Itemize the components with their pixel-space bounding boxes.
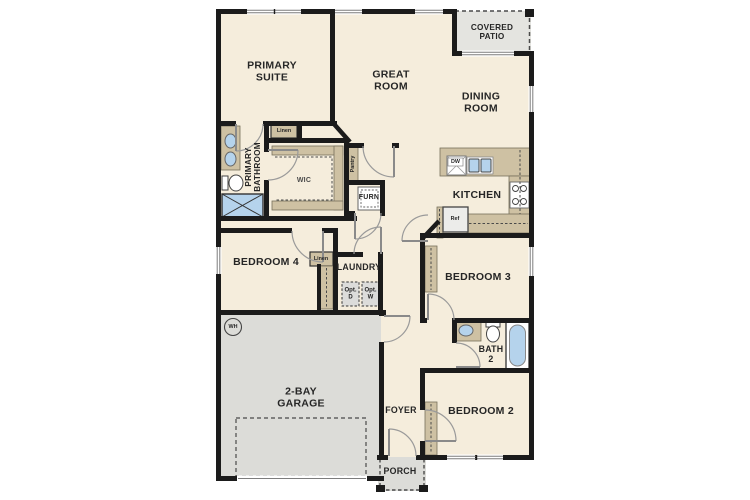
optional-dryer-box — [342, 282, 359, 306]
pantry-shelf — [348, 147, 358, 181]
furnace-fixture — [358, 187, 381, 210]
primary-bath-toilet-tank — [222, 176, 228, 190]
linen-closet-hall — [310, 252, 333, 266]
primary-bath-toilet — [229, 175, 243, 191]
garage-floor — [220, 313, 381, 478]
covered-patio-floor — [453, 11, 531, 53]
primary-bath-shower — [222, 194, 263, 217]
wic-shelf-bottom — [272, 201, 343, 210]
bath2-tub — [506, 321, 529, 369]
bath2-toilet — [487, 326, 500, 342]
dishwasher-fixture — [447, 156, 466, 175]
floor-plan: PRIMARY SUITE GREAT ROOM COVERED PATIO D… — [0, 0, 750, 500]
wic-shelf-right — [334, 146, 343, 210]
primary-bath-sink-1 — [225, 134, 236, 148]
floor-fills — [219, 11, 531, 491]
optional-washer-box — [362, 282, 379, 306]
refrigerator-fixture — [443, 207, 468, 232]
linen-closet-bath — [271, 124, 297, 138]
kitchen-sink — [467, 157, 493, 174]
primary-bath-sink-2 — [225, 152, 236, 166]
floor-plan-drawing — [0, 0, 750, 500]
porch-floor — [378, 457, 426, 491]
water-heater-fixture — [225, 319, 242, 336]
bath2-sink — [459, 325, 473, 336]
